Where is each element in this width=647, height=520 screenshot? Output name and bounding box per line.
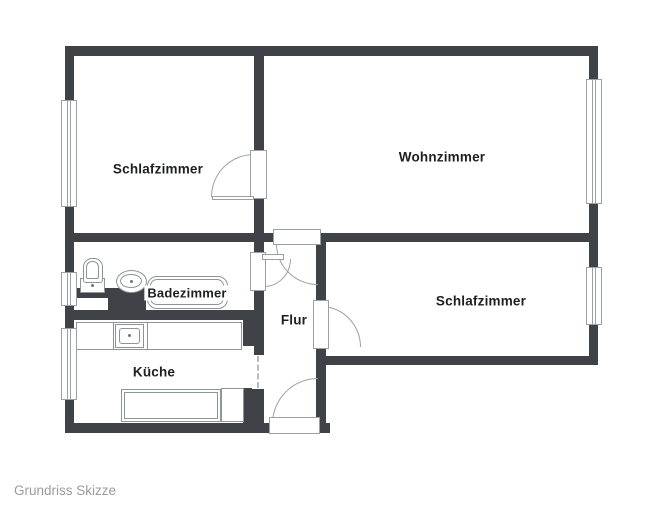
plan-caption: Grundriss Skizze: [14, 483, 116, 498]
counter-divider: [147, 323, 148, 349]
kitchen-cabinet-inner: [124, 392, 218, 419]
living-room-door-jamb: [273, 229, 321, 245]
window-glass-line: [67, 100, 71, 207]
bathroom-label: Badezimmer: [144, 286, 229, 301]
kitchen-cabinet-fixture: [121, 389, 221, 422]
bedroom-right-window: [586, 267, 602, 325]
kitchen-pillar-lower: [243, 388, 264, 424]
living-room-window: [586, 79, 602, 204]
wall-bedroom-living-divider: [254, 46, 264, 242]
kitchen-pillar-upper: [243, 320, 264, 346]
counter-divider: [113, 323, 114, 349]
kitchen-opening-dashed-line: [257, 356, 259, 388]
bedroom-left-door-arc: [211, 154, 254, 197]
entrance-door-jamb: [269, 417, 320, 434]
washbasin-dot: [130, 280, 133, 283]
bathroom-door-arc: [264, 259, 291, 287]
kitchen-sink-dot: [128, 334, 131, 337]
window-glass-line: [67, 272, 71, 306]
bathroom-window: [61, 272, 77, 306]
toilet-bowl-inner: [86, 261, 99, 279]
bedroom-left-label: Schlafzimmer: [113, 162, 203, 177]
kitchen-opening-gap: [252, 355, 266, 389]
living-room-label: Wohnzimmer: [399, 150, 486, 165]
window-glass-line: [67, 328, 71, 400]
bedroom-right-door-jamb: [313, 300, 329, 349]
kitchen-window: [61, 328, 77, 400]
hallway-label: Flur: [281, 313, 307, 328]
bedroom-right-label: Schlafzimmer: [436, 294, 526, 309]
kitchen-label: Küche: [133, 365, 175, 380]
bathroom-door-leaf: [262, 254, 284, 260]
outer-wall-bottom-right: [316, 356, 598, 365]
window-glass-line: [592, 79, 596, 204]
bedroom-left-window: [61, 100, 77, 207]
appliance-fixture: [221, 388, 244, 422]
bedroom-left-door-leaf: [212, 196, 254, 200]
window-glass-line: [592, 267, 596, 325]
bathroom-wall-stub: [108, 288, 146, 320]
toilet-bowl-fixture: [83, 258, 103, 283]
toilet-dot: [91, 284, 94, 287]
outer-wall-top: [65, 46, 598, 56]
bedroom-left-door-jamb: [250, 150, 267, 199]
kitchen-counter-fixture: [76, 322, 242, 350]
middle-wall-horizontal: [65, 233, 598, 242]
kitchen-bathroom-wall: [65, 310, 264, 320]
floor-plan: Schlafzimmer Wohnzimmer Badezimmer Flur …: [0, 0, 647, 520]
